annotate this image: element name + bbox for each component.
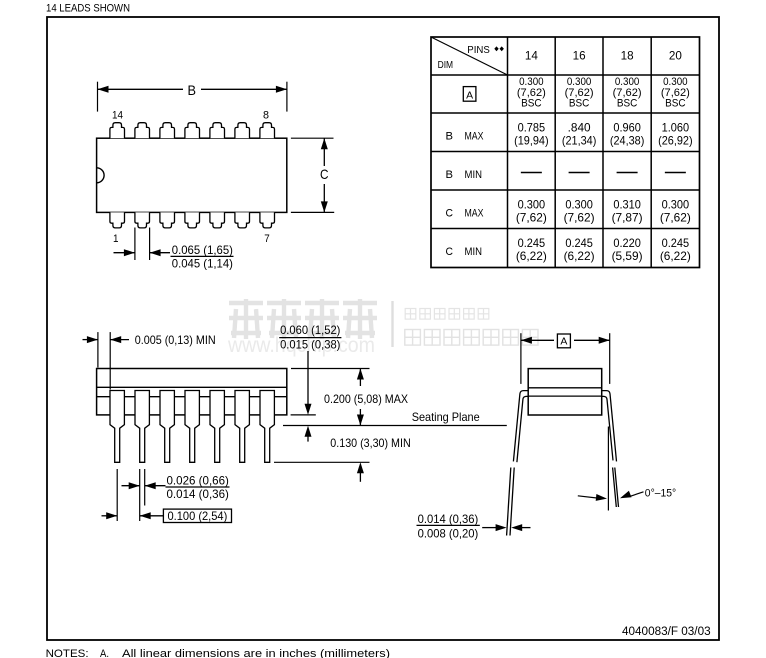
svg-text:.840: .840 xyxy=(568,122,591,135)
svg-text:0.060 (1,52): 0.060 (1,52) xyxy=(280,324,340,337)
svg-text:0.310: 0.310 xyxy=(613,199,641,212)
svg-text:0.014 (0,36): 0.014 (0,36) xyxy=(167,488,230,501)
svg-text:(19,94): (19,94) xyxy=(514,135,549,148)
svg-text:8: 8 xyxy=(263,110,269,122)
svg-text:20: 20 xyxy=(669,49,682,63)
svg-text:DIM: DIM xyxy=(438,59,454,71)
svg-text:MAX: MAX xyxy=(465,131,484,143)
svg-text:7: 7 xyxy=(264,233,270,245)
svg-text:A: A xyxy=(560,337,567,348)
svg-text:(6,22): (6,22) xyxy=(660,250,691,263)
svg-text:B: B xyxy=(446,169,454,181)
svg-text:MIN: MIN xyxy=(465,246,483,258)
svg-text:1.060: 1.060 xyxy=(662,122,690,135)
svg-text:PINS: PINS xyxy=(467,44,490,56)
svg-text:14: 14 xyxy=(112,110,123,122)
svg-text:0°–15°: 0°–15° xyxy=(645,488,676,500)
svg-text:BSC: BSC xyxy=(521,97,542,109)
svg-text:0.045 (1,14): 0.045 (1,14) xyxy=(172,257,233,270)
svg-text:0.245: 0.245 xyxy=(565,237,593,250)
svg-text:BSC: BSC xyxy=(665,97,686,109)
svg-text:0.785: 0.785 xyxy=(518,122,546,135)
svg-text:C: C xyxy=(446,246,454,258)
svg-text:BSC: BSC xyxy=(617,97,638,109)
svg-text:C: C xyxy=(320,166,329,182)
svg-text:0.014 (0,36): 0.014 (0,36) xyxy=(418,513,479,526)
svg-text:0.300: 0.300 xyxy=(565,199,593,212)
svg-text:(6,22): (6,22) xyxy=(564,250,595,263)
svg-text:Seating Plane: Seating Plane xyxy=(412,410,480,424)
svg-text:B: B xyxy=(188,82,197,98)
svg-text:B: B xyxy=(446,131,454,143)
svg-text:(7,62): (7,62) xyxy=(564,212,595,225)
svg-text:14 LEADS SHOWN: 14 LEADS SHOWN xyxy=(46,2,130,14)
svg-text:0.245: 0.245 xyxy=(518,237,546,250)
svg-text:(26,92): (26,92) xyxy=(658,135,693,148)
svg-text:(24,38): (24,38) xyxy=(610,135,645,148)
svg-text:0.245: 0.245 xyxy=(662,237,690,250)
svg-text:0.960: 0.960 xyxy=(613,122,641,135)
svg-text:4040083/F 03/03: 4040083/F 03/03 xyxy=(622,626,711,638)
svg-text:18: 18 xyxy=(621,49,634,63)
svg-text:0.130 (3,30) MIN: 0.130 (3,30) MIN xyxy=(330,437,410,450)
svg-text:BSC: BSC xyxy=(569,97,590,109)
svg-text:A: A xyxy=(466,89,473,101)
svg-text:All linear dimensions are in i: All linear dimensions are in inches (mil… xyxy=(122,648,390,658)
svg-text:(7,62): (7,62) xyxy=(516,212,547,225)
svg-text:A.: A. xyxy=(100,648,109,658)
svg-text:NOTES:: NOTES: xyxy=(46,648,89,658)
svg-text:(5,59): (5,59) xyxy=(612,250,643,263)
svg-text:(7,62): (7,62) xyxy=(660,212,691,225)
svg-text:(6,22): (6,22) xyxy=(516,250,547,263)
svg-text:0.100 (2,54): 0.100 (2,54) xyxy=(168,510,228,523)
svg-text:0.015 (0,38): 0.015 (0,38) xyxy=(280,338,340,351)
svg-text:MAX: MAX xyxy=(465,208,484,220)
svg-text:0.200 (5,08) MAX: 0.200 (5,08) MAX xyxy=(324,393,408,406)
svg-text:0.005 (0,13) MIN: 0.005 (0,13) MIN xyxy=(135,334,216,347)
svg-text:0.220: 0.220 xyxy=(613,237,641,250)
svg-text:MIN: MIN xyxy=(465,169,483,181)
svg-text:0.065 (1,65): 0.065 (1,65) xyxy=(172,244,233,257)
svg-text:(21,34): (21,34) xyxy=(562,135,597,148)
svg-text:1: 1 xyxy=(113,233,119,245)
svg-text:14: 14 xyxy=(525,49,538,63)
svg-text:0.026 (0,66): 0.026 (0,66) xyxy=(167,474,230,487)
svg-text:0.300: 0.300 xyxy=(662,199,690,212)
svg-text:(7,87): (7,87) xyxy=(612,212,643,225)
svg-text:0.008 (0,20): 0.008 (0,20) xyxy=(418,527,479,540)
svg-text:16: 16 xyxy=(573,49,586,63)
svg-text:0.300: 0.300 xyxy=(518,199,546,212)
svg-text:C: C xyxy=(446,208,454,220)
